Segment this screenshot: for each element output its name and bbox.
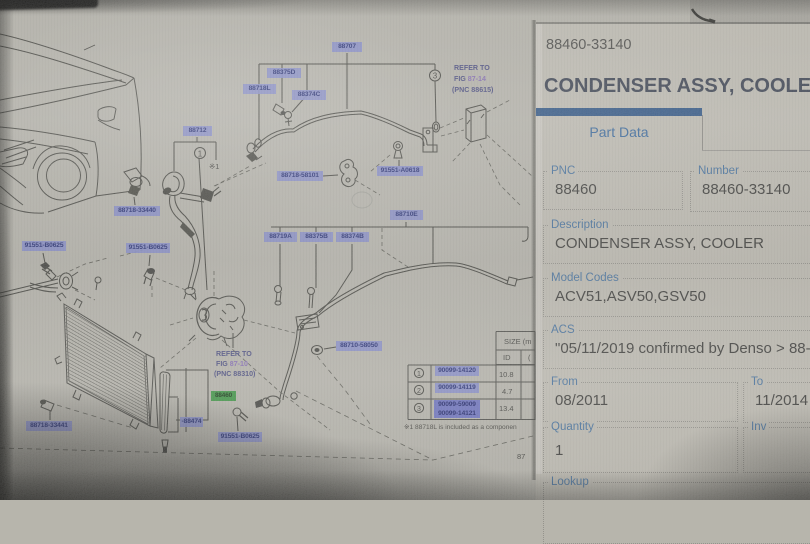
svg-text:2: 2: [417, 388, 421, 395]
svg-text:1: 1: [198, 150, 203, 159]
svg-text:(PNC 88615): (PNC 88615): [452, 86, 494, 94]
svg-text:3: 3: [417, 406, 421, 413]
svg-text:REFER TO: REFER TO: [216, 350, 252, 358]
svg-text:13.4: 13.4: [499, 404, 514, 413]
svg-text:※1: ※1: [209, 162, 219, 171]
svg-text:3: 3: [433, 72, 438, 81]
svg-text:ID: ID: [503, 353, 511, 362]
svg-text:1: 1: [417, 371, 421, 378]
svg-text:REFER TO: REFER TO: [454, 64, 490, 72]
svg-text:SIZE (m: SIZE (m: [504, 337, 532, 346]
svg-text:FIG 87-14: FIG 87-14: [454, 75, 486, 83]
svg-text:10.8: 10.8: [499, 370, 514, 379]
svg-text:※1 88718L is included as a com: ※1 88718L is included as a componen: [404, 424, 517, 431]
svg-text:(PNC 88310): (PNC 88310): [214, 370, 256, 378]
svg-text:4.7: 4.7: [502, 387, 512, 396]
svg-text:87: 87: [517, 452, 525, 461]
svg-text:FIG 87-10: FIG 87-10: [216, 360, 248, 368]
